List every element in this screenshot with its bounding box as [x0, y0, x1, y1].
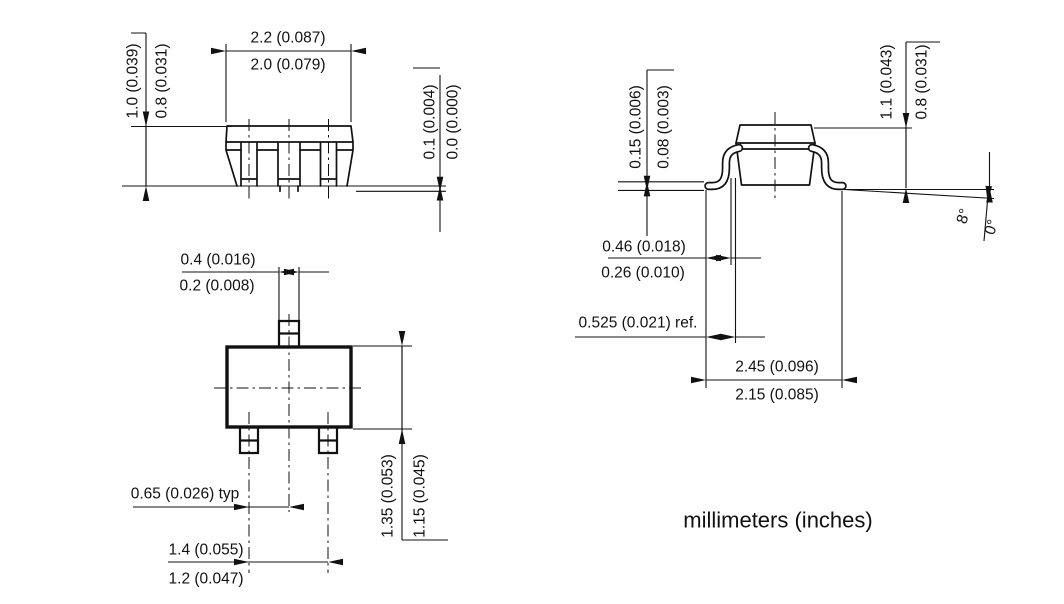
- dim-front-standoff-min: 0.0 (0.000): [444, 85, 461, 160]
- dim-top-depth-min: 1.15 (0.045): [411, 454, 428, 538]
- side-foot-extension-lines: [706, 178, 842, 388]
- dim-side-foot-length-max: 0.46 (0.018): [602, 238, 686, 255]
- dim-top-lead-width-min: 0.2 (0.008): [180, 277, 255, 294]
- side-thickness-extension-lines: [618, 182, 704, 191]
- top-depth-extension-lines: [353, 346, 412, 429]
- dim-side-span-max: 2.45 (0.096): [735, 358, 819, 375]
- dim-top-lead-width-max: 0.4 (0.016): [181, 251, 256, 268]
- dim-side-thickness-max: 0.15 (0.006): [627, 85, 644, 169]
- dim-top-lead-pitch: 0.65 (0.026) typ: [131, 485, 240, 502]
- package-outline-drawing: 2.2 (0.087) 2.0 (0.079) 1.0 (0.039) 0.8 …: [0, 0, 1064, 604]
- dim-side-foot-ref: 0.525 (0.021) ref.: [579, 314, 698, 331]
- dim-top-span-max: 1.4 (0.055): [169, 541, 244, 558]
- dim-side-thickness-min: 0.08 (0.003): [655, 85, 672, 169]
- dim-top-span-min: 1.2 (0.047): [169, 570, 244, 587]
- drawing-canvas: 2.2 (0.087) 2.0 (0.079) 1.0 (0.039) 0.8 …: [0, 0, 1064, 604]
- dim-front-width-max: 2.2 (0.087): [251, 29, 326, 46]
- front-lead-centerlines: [249, 119, 329, 199]
- dim-side-height-min: 0.8 (0.031): [913, 45, 930, 120]
- dim-side-foot-length-min: 0.26 (0.010): [601, 264, 685, 281]
- dim-top-depth-max: 1.35 (0.053): [379, 454, 396, 538]
- side-angle-lines: [844, 190, 994, 199]
- dim-front-standoff-max: 0.1 (0.004): [421, 85, 438, 160]
- dim-side-angle-max: 8°: [954, 207, 975, 226]
- dim-side-height-max: 1.1 (0.043): [878, 45, 895, 120]
- side-body: [736, 125, 815, 185]
- units-note: millimeters (inches): [683, 508, 872, 533]
- side-view: 0.15 (0.006) 0.08 (0.003) 0.46 (0.018) 0…: [575, 42, 1002, 403]
- top-view: 0.4 (0.016) 0.2 (0.008) 0.65 (0.026) typ…: [131, 251, 448, 587]
- top-tab-extension-lines: [279, 267, 299, 321]
- front-view: 2.2 (0.087) 2.0 (0.079) 1.0 (0.039) 0.8 …: [122, 29, 461, 232]
- dim-side-span-min: 2.15 (0.085): [735, 386, 819, 403]
- dim-front-height-min: 0.8 (0.031): [153, 44, 170, 119]
- dim-front-width-min: 2.0 (0.079): [251, 56, 326, 73]
- front-seating-plane-lines: [122, 186, 446, 191]
- dim-front-height-max: 1.0 (0.039): [124, 44, 141, 119]
